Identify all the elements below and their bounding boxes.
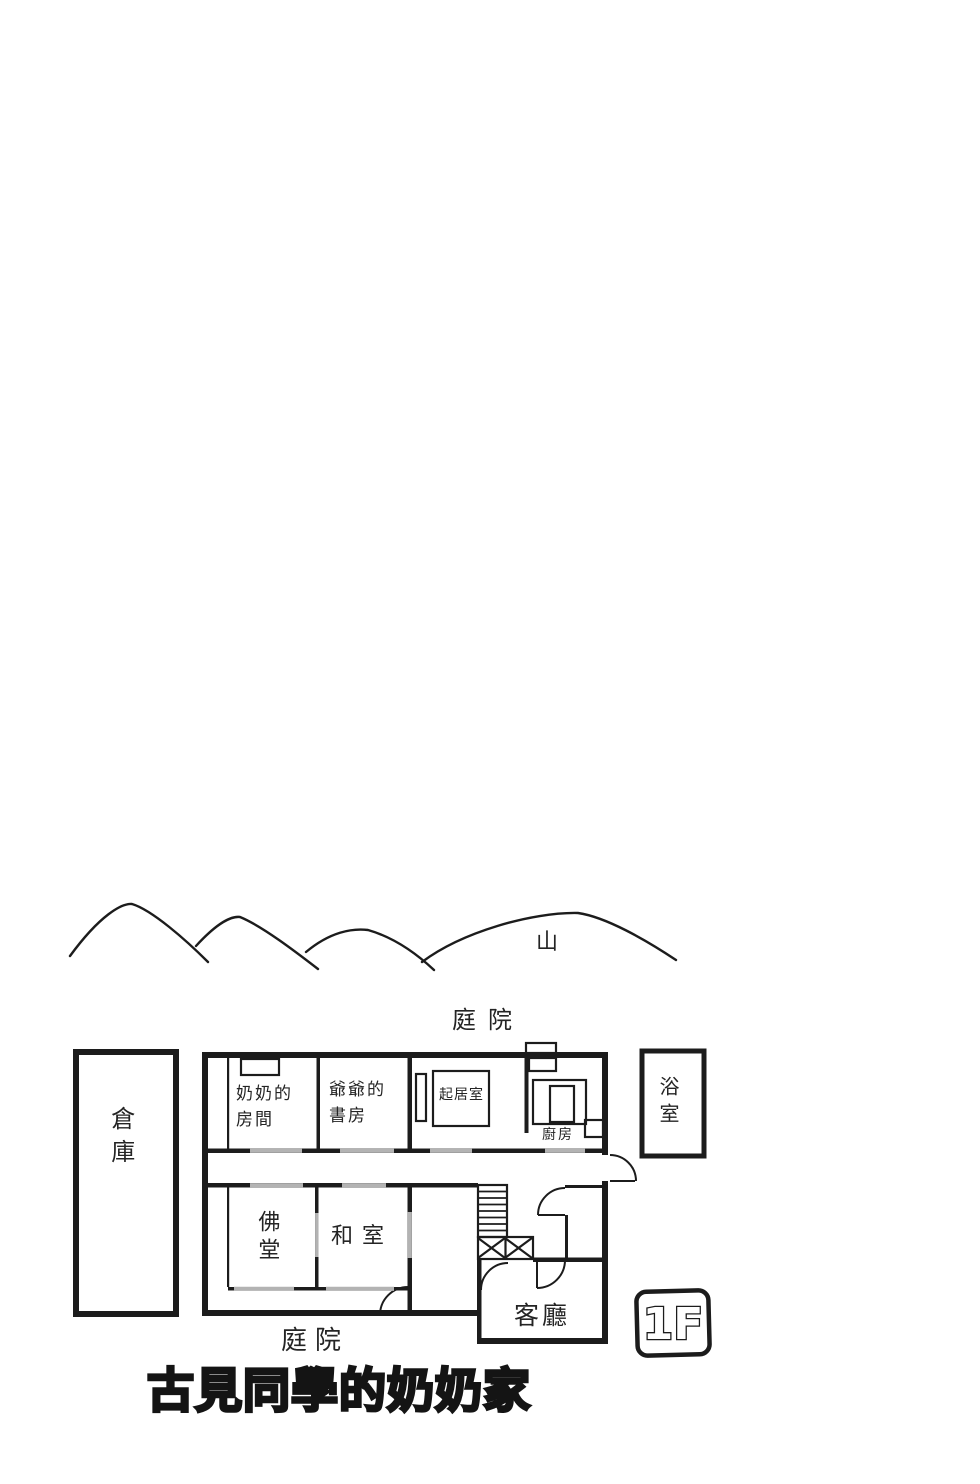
kitchen-corner-unit (585, 1120, 603, 1137)
kitchen-bay (526, 1043, 556, 1053)
room-label-grandpa-study: 爺爺的 書房 (329, 1078, 386, 1129)
kitchen-stove (550, 1086, 574, 1122)
page-title: 古見同學的奶奶家 (147, 1364, 531, 1420)
staircase (478, 1185, 533, 1259)
room-label-altar-room: 佛堂 (253, 1210, 279, 1266)
label-mountain: 山 (536, 930, 558, 956)
manga-page: 1F 庭院 山 倉庫 奶奶的 房間 爺爺的 書房 起居室 廚房 浴室 佛堂 和室… (0, 0, 980, 1484)
small-room-door-arc (538, 1188, 565, 1215)
floor-badge-text: 1F (643, 1299, 704, 1350)
room-label-tatami-room: 和室 (331, 1224, 393, 1250)
label-garden-top: 庭院 (452, 1006, 524, 1035)
label-garden-bottom: 庭院 (281, 1326, 349, 1357)
floor-plan-drawing: 1F (0, 0, 980, 1484)
room-label-storehouse: 倉庫 (106, 1106, 135, 1172)
floor-badge: 1F (636, 1290, 710, 1356)
room-label-grandma-room-line1: 奶奶的 (236, 1082, 293, 1108)
room-label-kitchen: 廚房 (542, 1127, 574, 1144)
room-label-grandma-room-line2: 房間 (236, 1108, 293, 1134)
room-label-bath: 浴室 (656, 1076, 680, 1130)
room-label-grandma-room: 奶奶的 房間 (236, 1082, 293, 1133)
room-label-parlor: 客廳 (514, 1301, 570, 1331)
mountain-sketch (70, 904, 676, 970)
parlor-door-arc (537, 1260, 565, 1288)
kitchen-sink (529, 1058, 556, 1071)
room-label-grandpa-study-line2: 書房 (329, 1104, 386, 1130)
east-door-arc (610, 1155, 636, 1181)
room-label-living-room: 起居室 (439, 1087, 484, 1104)
room-label-grandpa-study-line1: 爺爺的 (329, 1078, 386, 1104)
closet-box (241, 1059, 279, 1075)
shoji-panel (416, 1074, 426, 1121)
storehouse-outline (76, 1052, 176, 1314)
hall-door-arc (481, 1263, 508, 1290)
